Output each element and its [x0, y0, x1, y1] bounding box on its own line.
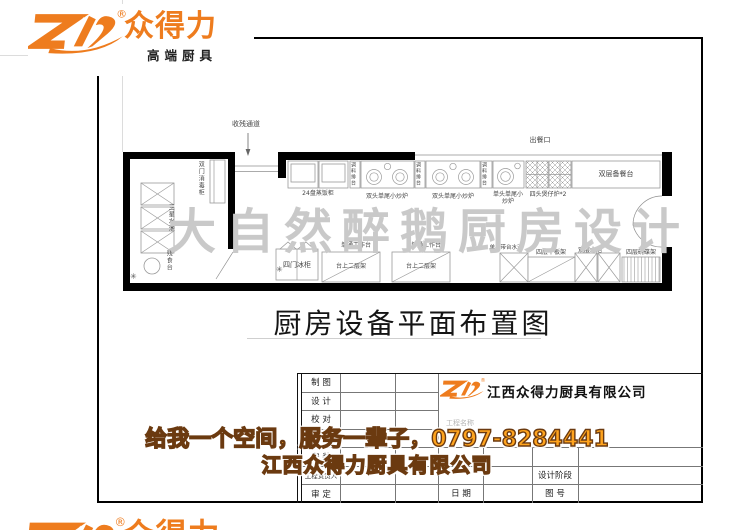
watermark-text: 大自然醉鹅厨房设计 [168, 192, 690, 262]
titleblock-logo-mark: ® [440, 376, 486, 401]
titleblock-divider [302, 392, 438, 393]
design-stage-label: 设计阶段 [538, 469, 572, 481]
brand-name: 众得力 [123, 520, 221, 530]
drawing-no-label: 图 号 [545, 487, 565, 499]
titleblock-divider [297, 373, 703, 374]
bottom-logo-clipped: ® 众得力 高端厨具 [22, 514, 262, 530]
brand-logo-mark: ® [22, 514, 127, 530]
titleblock-row-label: 审 定 [311, 488, 331, 500]
brand-name: 众得力 [124, 12, 217, 42]
brand-logo-mark: ® [28, 4, 128, 66]
titleblock-company: 江西众得力厨具有限公司 [487, 381, 647, 401]
svg-text:®: ® [481, 377, 486, 384]
title-underline [247, 338, 541, 339]
promo-line-2: 江西众得力厨具有限公司 [262, 449, 493, 478]
titleblock-row-label: 制 图 [311, 376, 331, 388]
titleblock-divider [302, 410, 438, 411]
page: 收残通道 出餐口 双门消毒柜三星水池残食台24盘蒸饭柜调料排台双头单尾小炒炉调料… [0, 0, 750, 530]
titleblock-divider [532, 447, 533, 503]
titleblock-divider [302, 484, 703, 485]
brand-logo: ® 众得力 高端厨具 [28, 4, 254, 76]
date-label: 日 期 [451, 487, 471, 499]
brand-tagline: 高端厨具 [124, 45, 217, 64]
titleblock-divider [578, 447, 579, 503]
drawing-title: 厨房设备平面布置图 [273, 302, 552, 342]
brand-logo-text: 众得力 高端厨具 [124, 4, 217, 64]
titleblock-row-label: 设 计 [311, 395, 331, 407]
